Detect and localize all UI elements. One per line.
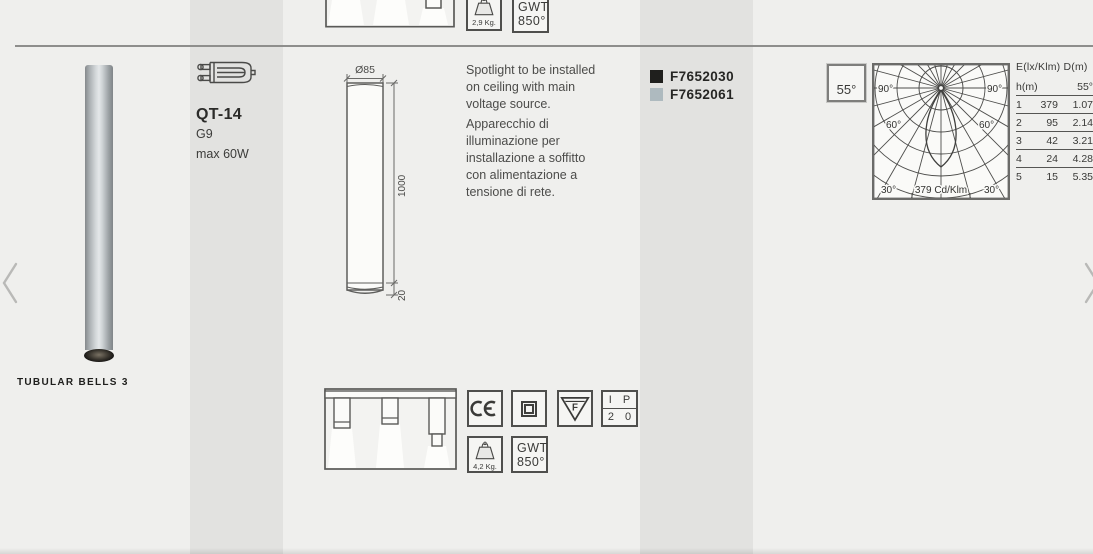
- article-codes: F7652030 F7652061: [650, 67, 734, 103]
- previous-weight-box: 2,9 Kg.: [466, 0, 502, 31]
- finish-swatch-grey: [650, 88, 663, 101]
- beam-angle-box: 55°: [827, 64, 866, 102]
- article-code: F7652061: [670, 87, 734, 102]
- polar-angle-label: 60°: [886, 120, 901, 131]
- ip-value: 2 0: [603, 409, 636, 426]
- finish-swatch-dark: [650, 70, 663, 83]
- previous-gwt-box: GWT 850°: [512, 0, 549, 33]
- bottom-shade: [0, 548, 1093, 554]
- ce-mark-box: [467, 390, 503, 427]
- weight-box: 4,2 Kg.: [467, 436, 503, 473]
- code-row: F7652061: [650, 85, 734, 103]
- technical-drawing: Ø85 1000 20: [330, 60, 425, 305]
- weight-icon: [472, 441, 498, 461]
- ip-label: I P: [603, 392, 636, 409]
- weight-label: 4,2 Kg.: [473, 462, 497, 471]
- code-row: F7652030: [650, 67, 734, 85]
- dim-diameter-label: Ø85: [355, 64, 375, 76]
- photometry-table: E(lx/Klm) D(m) h(m) 55° 1 379 1.07 2 95 …: [1016, 61, 1093, 186]
- description-italian: Apparecchio di illuminazione per install…: [466, 116, 646, 201]
- polar-angle-label: 30°: [881, 185, 896, 196]
- product-photo-aperture: [84, 349, 114, 362]
- f-mark-box: F: [557, 390, 593, 427]
- ce-mark-icon: [470, 399, 500, 418]
- prev-page-chevron-icon[interactable]: [2, 262, 18, 304]
- dim-base-label: 20: [397, 289, 408, 301]
- polar-diagram: 90° 90° 60° 60° 30° 30° 379 Cd/Klm: [872, 63, 1010, 200]
- table-row: 3 42 3.21: [1016, 132, 1093, 150]
- polar-angle-label: 60°: [979, 120, 994, 131]
- installation-drawing: [324, 388, 457, 470]
- previous-gwt-line1: GWT: [518, 0, 549, 14]
- dim-height-label: 1000: [397, 174, 408, 197]
- polar-angle-label: 90°: [878, 84, 893, 95]
- description-english: Spotlight to be installed on ceiling wit…: [466, 62, 646, 113]
- table-row: 1 379 1.07: [1016, 96, 1093, 114]
- g9-lamp-icon: [197, 61, 258, 84]
- lamp-type: QT-14: [196, 106, 242, 124]
- polar-angle-label: 90°: [987, 84, 1002, 95]
- gwt-line1: GWT: [517, 441, 548, 455]
- product-photo-tube: [85, 65, 113, 350]
- gwt-box: GWT 850°: [511, 436, 548, 473]
- table-row: 5 15 5.35: [1016, 168, 1093, 186]
- article-code: F7652030: [670, 69, 734, 84]
- class-ii-box: [511, 390, 547, 427]
- photometry-subheader: h(m) 55°: [1016, 78, 1093, 96]
- beam-angle-value: 55°: [837, 82, 857, 100]
- lamp-max-power: max 60W: [196, 147, 249, 161]
- double-square-icon: [521, 401, 537, 417]
- f-mark-letter: F: [572, 402, 578, 413]
- lamp-socket: G9: [196, 127, 213, 141]
- table-row: 4 24 4.28: [1016, 150, 1093, 168]
- gwt-line2: 850°: [517, 455, 545, 469]
- product-name: TUBULAR BELLS 3: [17, 377, 129, 388]
- previous-weight-label: 2,9 Kg.: [472, 18, 496, 27]
- ip-rating-box: I P 2 0: [601, 390, 638, 427]
- photometry-table-header: E(lx/Klm) D(m): [1016, 61, 1093, 78]
- section-divider: [15, 45, 1093, 47]
- weight-icon: [471, 0, 497, 17]
- previous-product-drawing: [325, 0, 455, 28]
- f-mark-icon: F: [560, 395, 590, 422]
- polar-angle-label: 30°: [984, 185, 999, 196]
- previous-gwt-line2: 850°: [518, 14, 546, 28]
- table-row: 2 95 2.14: [1016, 114, 1093, 132]
- next-page-chevron-icon[interactable]: [1084, 262, 1093, 304]
- candela-label: 379 Cd/Klm: [915, 185, 967, 196]
